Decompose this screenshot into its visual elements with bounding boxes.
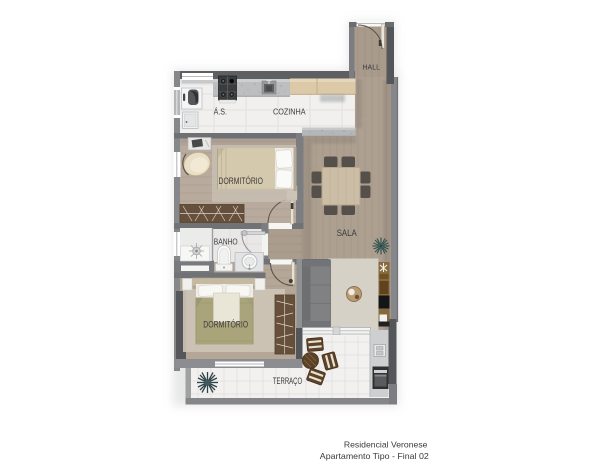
svg-text:DORMITÓRIO: DORMITÓRIO (219, 176, 264, 186)
svg-text:Apartamento Tipo - Final 02: Apartamento Tipo - Final 02 (320, 451, 429, 461)
svg-text:Residencial Veronese: Residencial Veronese (344, 440, 428, 450)
svg-text:COZINHA: COZINHA (273, 107, 306, 116)
svg-text:DORMITÓRIO: DORMITÓRIO (203, 320, 248, 330)
svg-text:HALL: HALL (363, 63, 381, 72)
svg-text:SALA: SALA (337, 228, 357, 238)
svg-text:BANHO: BANHO (214, 237, 238, 247)
svg-text:Á.S.: Á.S. (214, 107, 227, 116)
svg-text:TERRAÇO: TERRAÇO (273, 376, 302, 386)
